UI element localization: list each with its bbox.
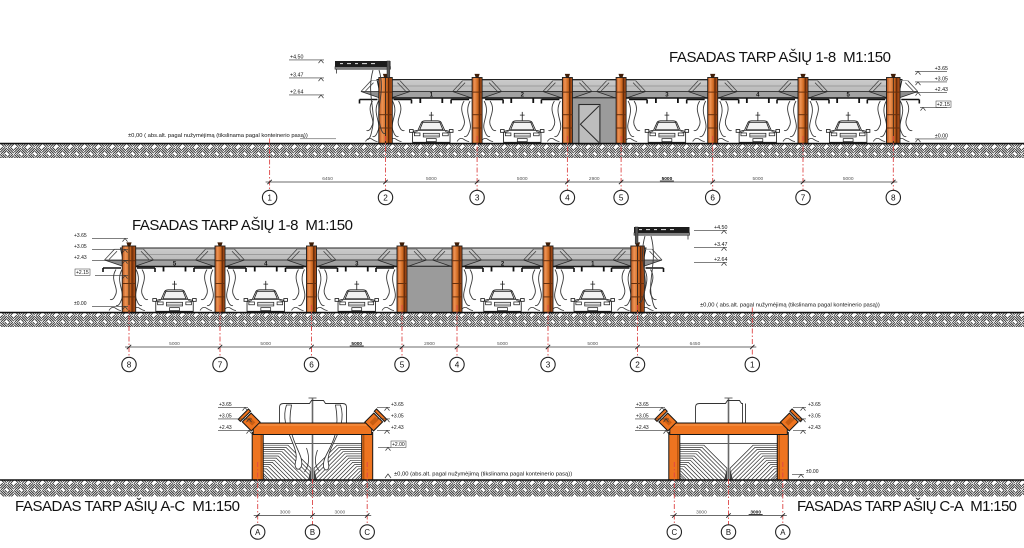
svg-text:5000: 5000	[753, 176, 764, 182]
svg-text:6: 6	[309, 360, 314, 369]
svg-text:+3.05: +3.05	[808, 414, 821, 420]
svg-text:5000: 5000	[517, 176, 528, 182]
svg-text:6450: 6450	[690, 341, 701, 347]
svg-text:5: 5	[619, 193, 624, 202]
svg-text:3000: 3000	[696, 509, 707, 515]
svg-text:2900: 2900	[424, 341, 435, 347]
svg-text:±0,00 (abs.alt. pagal nužymėji: ±0,00 (abs.alt. pagal nužymėjimą (tiksli…	[394, 472, 572, 478]
svg-text:8: 8	[891, 193, 896, 202]
svg-text:1: 1	[750, 360, 755, 369]
svg-text:B: B	[726, 528, 731, 537]
svg-text:FASADAS TARP AŠIŲ A-C M1:150: FASADAS TARP AŠIŲ A-C M1:150	[15, 498, 240, 515]
svg-text:4: 4	[455, 360, 460, 369]
svg-text:3000: 3000	[335, 509, 346, 515]
svg-text:+2.43: +2.43	[808, 425, 821, 431]
svg-text:±0.00: ±0.00	[806, 469, 819, 475]
svg-text:3000: 3000	[280, 509, 291, 515]
svg-text:+4.50: +4.50	[290, 55, 303, 61]
svg-text:1: 1	[267, 193, 272, 202]
svg-text:5000: 5000	[169, 341, 180, 347]
svg-text:+3.05: +3.05	[74, 244, 87, 250]
svg-text:FASADAS TARP AŠIŲ C-A M1:150: FASADAS TARP AŠIŲ C-A M1:150	[797, 498, 1017, 515]
svg-text:FASADAS TARP AŠIŲ 1-8 M1:150: FASADAS TARP AŠIŲ 1-8 M1:150	[132, 217, 353, 234]
svg-text:+2.43: +2.43	[391, 425, 404, 431]
svg-text:6: 6	[710, 193, 715, 202]
svg-text:3: 3	[475, 193, 480, 202]
svg-text:7: 7	[801, 193, 806, 202]
svg-text:C: C	[364, 528, 370, 537]
svg-text:5000: 5000	[843, 176, 854, 182]
svg-text:±0,00 ( abs.alt. pagal nužymėj: ±0,00 ( abs.alt. pagal nužymėjimą (tiksl…	[128, 133, 308, 139]
svg-text:C: C	[671, 528, 677, 537]
svg-text:2900: 2900	[589, 176, 600, 182]
svg-text:7: 7	[218, 360, 223, 369]
svg-text:5000: 5000	[426, 176, 437, 182]
svg-text:+2.43: +2.43	[74, 255, 87, 261]
svg-text:+3.65: +3.65	[808, 402, 821, 408]
svg-text:+2.15: +2.15	[76, 270, 89, 276]
svg-text:+2.00: +2.00	[392, 442, 405, 448]
svg-text:8: 8	[127, 360, 132, 369]
svg-text:A: A	[255, 528, 261, 537]
svg-text:6450: 6450	[322, 176, 333, 182]
svg-text:5000: 5000	[260, 341, 271, 347]
svg-text:2: 2	[635, 360, 640, 369]
svg-text:A: A	[780, 528, 786, 537]
svg-text:FASADAS TARP AŠIŲ 1-8 M1:150: FASADAS TARP AŠIŲ 1-8 M1:150	[669, 49, 891, 66]
svg-text:+3.65: +3.65	[391, 402, 404, 408]
svg-text:±0,00 ( abs.alt. pagal nužymėj: ±0,00 ( abs.alt. pagal nužymėjimą (tiksl…	[700, 303, 880, 309]
svg-text:5000: 5000	[497, 341, 508, 347]
svg-text:+3.05: +3.05	[391, 414, 404, 420]
svg-text:4: 4	[565, 193, 570, 202]
svg-text:±0.00: ±0.00	[74, 301, 87, 307]
svg-text:5: 5	[400, 360, 405, 369]
svg-text:B: B	[310, 528, 315, 537]
svg-text:2: 2	[383, 193, 388, 202]
svg-text:3: 3	[546, 360, 551, 369]
svg-text:+3.65: +3.65	[74, 233, 87, 239]
svg-text:5000: 5000	[587, 341, 598, 347]
